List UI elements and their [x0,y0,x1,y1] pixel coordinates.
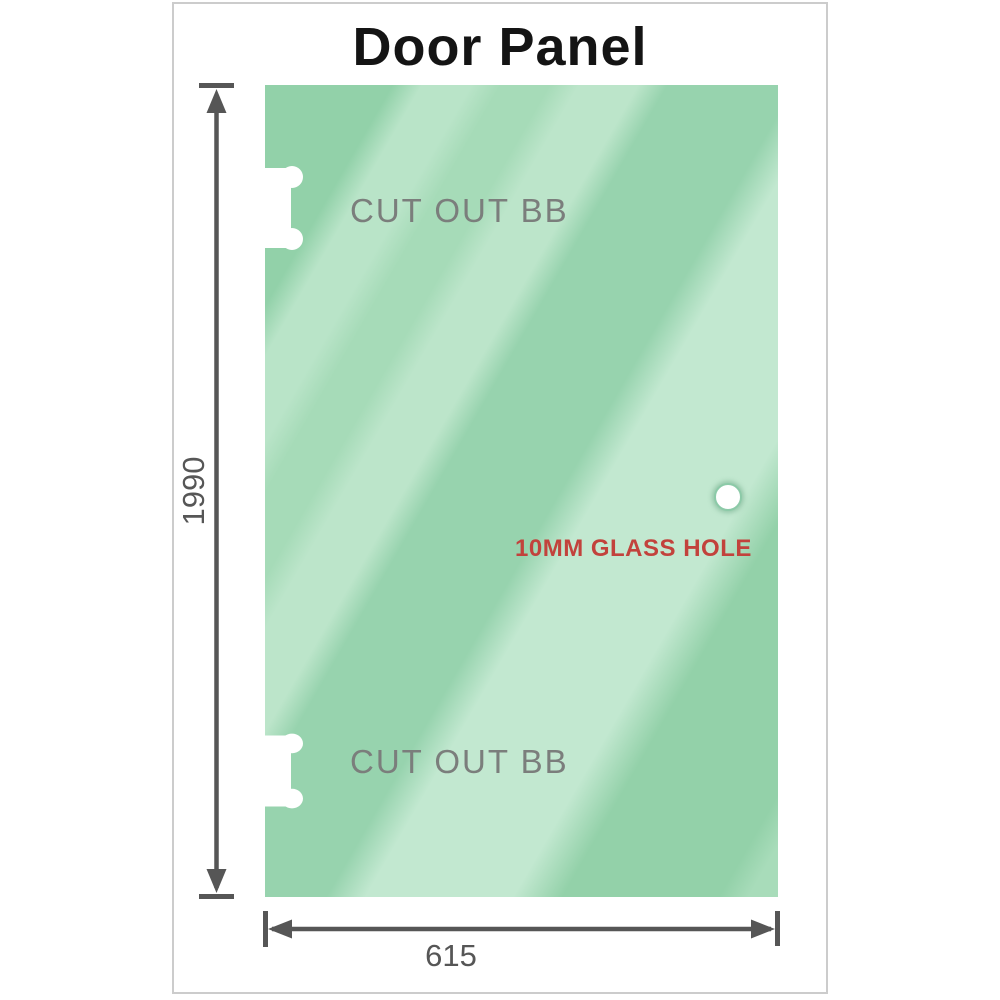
height-dimension-label: 1990 [177,455,211,527]
cutout-notch-icon [263,163,305,253]
glass-hole-label: 10MM GLASS HOLE [515,535,752,563]
cutout-bottom-shape [263,731,305,811]
page-title: Door Panel [172,16,828,78]
width-dimension-label: 615 [405,938,497,974]
cutout-top-shape [263,163,305,253]
page: Door Panel CUT OUT BB CUT OUT BB 10MM GL… [0,0,1000,1000]
cutout-top-label: CUT OUT BB [350,192,569,230]
glass-panel: CUT OUT BB CUT OUT BB 10MM GLASS HOLE [265,85,778,897]
cutout-notch-icon [263,731,305,811]
glass-hole [714,483,742,511]
cutout-bottom-label: CUT OUT BB [350,743,569,781]
